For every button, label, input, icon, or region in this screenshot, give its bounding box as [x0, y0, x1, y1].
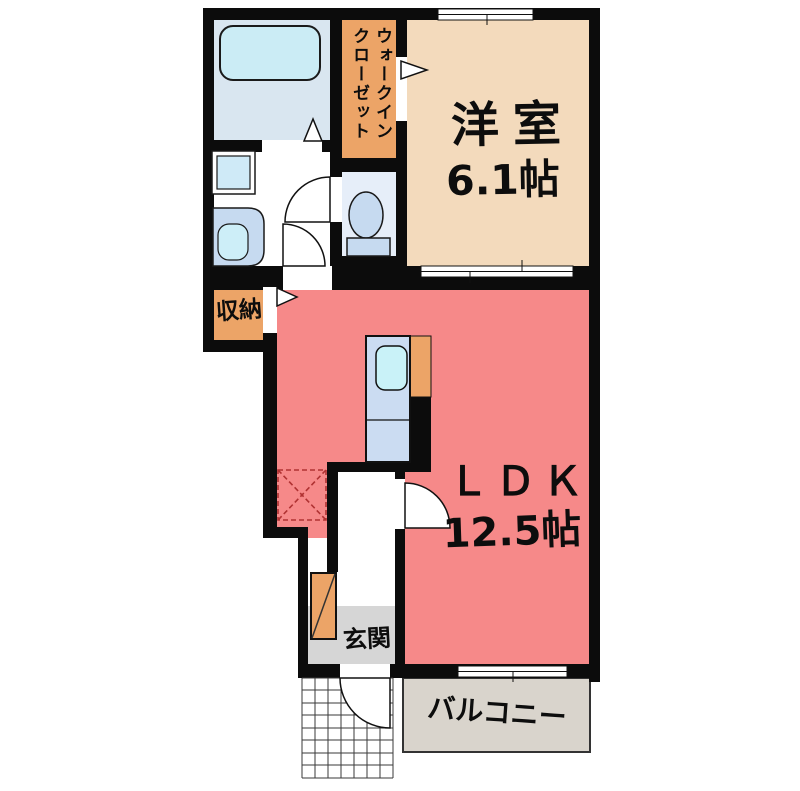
kitchen-wall-block — [405, 397, 431, 462]
room-area-ldk: 12.5帖 — [411, 509, 612, 556]
room-washroom — [214, 152, 330, 266]
wall-kitchen-bottom — [327, 462, 431, 472]
wall-left — [203, 8, 214, 352]
door-arc-front — [340, 678, 390, 728]
doorway-bathroom — [262, 140, 322, 152]
doorway-toilet — [330, 177, 342, 222]
hallway — [338, 472, 395, 606]
doorway-ldk — [395, 479, 405, 529]
wall-wic-bottom — [330, 158, 407, 172]
wall-mid-vertical — [330, 8, 342, 268]
wall-wic-right — [396, 8, 407, 290]
doorway-washroom — [283, 266, 332, 290]
doorway-front — [340, 664, 390, 678]
wall-toilet-bottom — [342, 256, 407, 266]
wall-hall-left — [327, 462, 338, 572]
room-area-western: 6.1帖 — [403, 158, 604, 202]
room-label-western: 洋室 — [413, 99, 614, 150]
room-bathroom — [214, 20, 330, 140]
wall-entrance-left — [298, 538, 308, 678]
room-label-walk-in-closet: ウォークイン クローゼット — [345, 27, 393, 159]
room-label-ldk: ＬＤＫ — [419, 462, 619, 502]
wic-label-column-1: ウォークイン — [370, 27, 393, 159]
entrance-porch-tiles — [302, 678, 393, 778]
room-toilet — [342, 172, 396, 256]
doorway-wic — [396, 57, 407, 121]
room-label-storage: 収納 — [208, 298, 269, 325]
floorplan-canvas: 洋室 6.1帖 ＬＤＫ 12.5帖 バルコニー 玄関 収納 ウォークイン クロー… — [0, 0, 800, 791]
wic-label-column-2: クローゼット — [347, 27, 370, 159]
wall-step — [263, 527, 308, 538]
room-label-entrance: 玄関 — [326, 625, 407, 653]
